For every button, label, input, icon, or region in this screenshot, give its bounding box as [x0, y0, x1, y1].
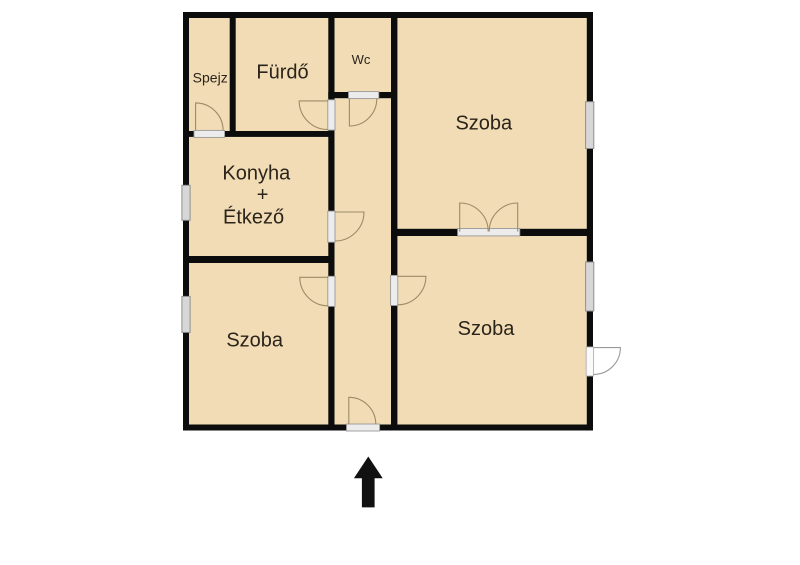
svg-text:Konyha: Konyha	[222, 163, 291, 185]
svg-text:Étkező: Étkező	[223, 205, 284, 228]
svg-text:+: +	[257, 184, 269, 206]
svg-text:Szoba: Szoba	[458, 318, 516, 340]
svg-text:Wc: Wc	[352, 52, 371, 67]
svg-text:Spejz: Spejz	[193, 69, 228, 85]
svg-text:Szoba: Szoba	[226, 330, 284, 352]
svg-text:Szoba: Szoba	[455, 113, 513, 135]
svg-text:Fürdő: Fürdő	[256, 62, 308, 84]
